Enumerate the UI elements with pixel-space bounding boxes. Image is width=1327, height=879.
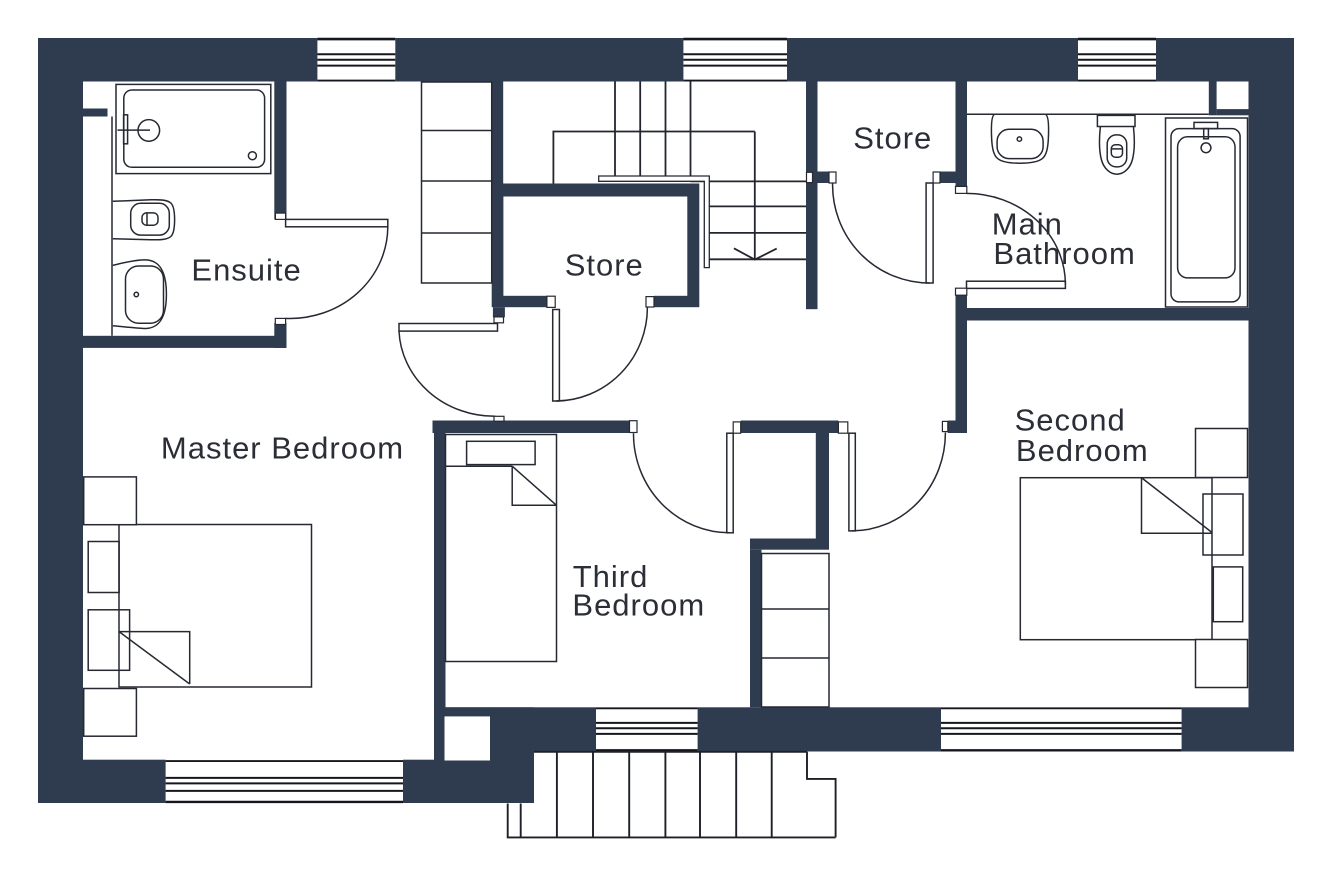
svg-text:Ensuite: Ensuite (191, 253, 301, 288)
svg-text:Bedroom: Bedroom (1016, 433, 1149, 468)
svg-text:Store: Store (565, 248, 644, 283)
svg-text:Master Bedroom: Master Bedroom (161, 431, 404, 466)
svg-text:Bedroom: Bedroom (572, 587, 705, 622)
svg-text:Bathroom: Bathroom (993, 236, 1135, 271)
svg-text:Store: Store (853, 121, 932, 156)
